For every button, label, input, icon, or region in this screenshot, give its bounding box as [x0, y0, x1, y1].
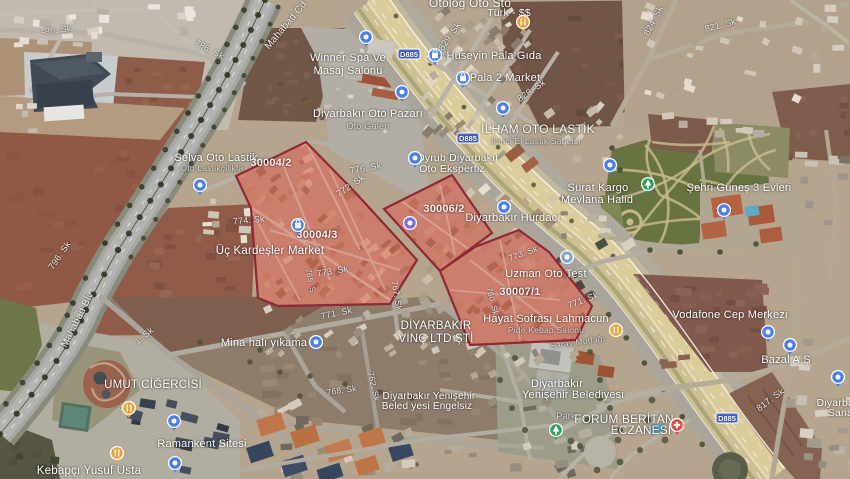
- svg-text:Oto Lastikçilikta: Oto Lastikçilikta: [181, 163, 244, 173]
- svg-text:Beled yesi Engelsiz: Beled yesi Engelsiz: [382, 401, 473, 412]
- svg-text:Yenişehir Belediyesi: Yenişehir Belediyesi: [522, 389, 624, 401]
- svg-text:Oto Ekspertiz: Oto Ekspertiz: [419, 163, 485, 175]
- svg-text:Hayat Sofrası Lahmacun: Hayat Sofrası Lahmacun: [483, 313, 608, 325]
- svg-text:UMUT CİĞERCİSİ: UMUT CİĞERCİSİ: [104, 378, 202, 391]
- svg-text:30007/1: 30007/1: [499, 286, 540, 298]
- svg-text:Diyarbakır Oto Pazarı: Diyarbakır Oto Pazarı: [313, 108, 423, 120]
- svg-text:Winner Spa Ve: Winner Spa Ve: [310, 52, 386, 64]
- svg-text:İkinci El Lastik Satıcısı: İkinci El Lastik Satıcısı: [491, 136, 581, 146]
- svg-text:30006/2: 30006/2: [423, 203, 464, 215]
- svg-text:D885: D885: [718, 414, 736, 423]
- svg-text:Diyarbakır Hurdacı: Diyarbakır Hurdacı: [465, 212, 560, 224]
- svg-text:D885: D885: [459, 134, 477, 143]
- svg-text:Park: Park: [556, 411, 576, 421]
- svg-text:Oto Galeri: Oto Galeri: [346, 121, 389, 131]
- svg-text:Mevlana Halid: Mevlana Halid: [561, 194, 633, 206]
- svg-text:Mina halı yıkama: Mina halı yıkama: [221, 337, 308, 349]
- svg-text:Şehri Güneş 3 Evleri: Şehri Güneş 3 Evleri: [687, 182, 792, 194]
- svg-text:VİNÇ LTD ŞTİ: VİNÇ LTD ŞTİ: [398, 332, 473, 345]
- svg-text:Hüseyin Pala Gıda: Hüseyin Pala Gıda: [446, 50, 542, 62]
- svg-text:Uzman Oto Test: Uzman Oto Test: [505, 268, 586, 280]
- svg-text:Bazal A.Ş: Bazal A.Ş: [761, 354, 811, 366]
- svg-text:Sürat Kargo: Sürat Kargo: [568, 182, 629, 194]
- svg-text:Masaj Salonu: Masaj Salonu: [313, 65, 382, 77]
- svg-text:Pide Kebap Salonu: Pide Kebap Salonu: [508, 325, 584, 335]
- svg-text:Kebapçı Yusuf Usta: Kebapçı Yusuf Usta: [37, 465, 142, 477]
- svg-text:DİYARBAKIR: DİYARBAKIR: [401, 319, 472, 332]
- svg-text:ECZANESİ: ECZANESİ: [611, 423, 672, 437]
- svg-text:Üç Kardeşler Market: Üç Kardeşler Market: [216, 245, 325, 257]
- svg-text:D885: D885: [400, 50, 418, 59]
- svg-text:İLHAM OTO LASTİK: İLHAM OTO LASTİK: [481, 122, 595, 136]
- svg-text:Sanat: Sanat: [828, 407, 850, 419]
- svg-text:Vodafone Cep Merkezi: Vodafone Cep Merkezi: [672, 309, 787, 321]
- svg-text:Pala 2 Market: Pala 2 Market: [470, 72, 540, 84]
- svg-text:30004/3: 30004/3: [296, 229, 337, 241]
- svg-text:Ramankent Sitesi: Ramankent Sitesi: [157, 438, 246, 450]
- svg-text:30004/2: 30004/2: [250, 157, 291, 169]
